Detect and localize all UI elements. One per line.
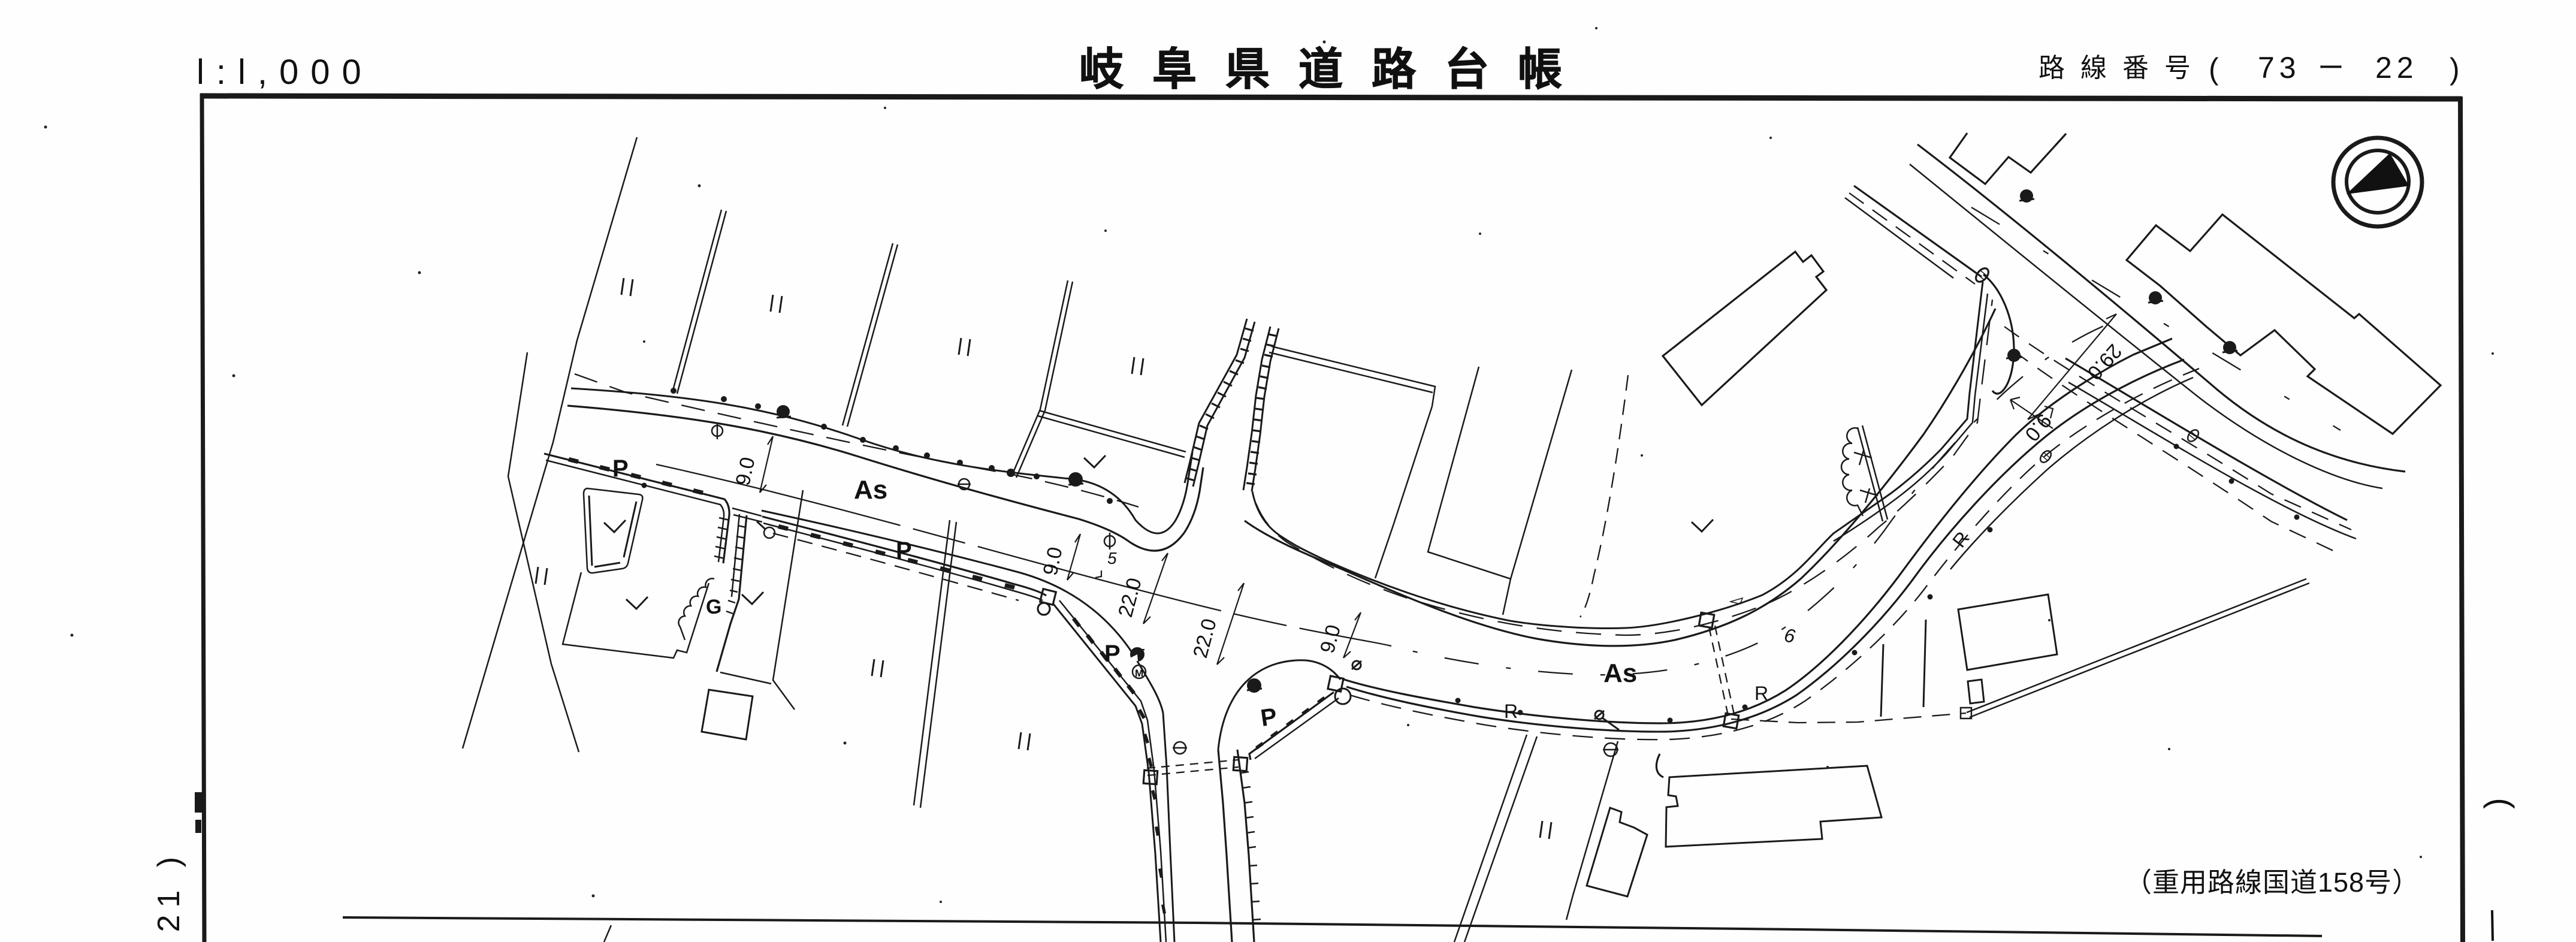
svg-text:（重用路線国道158号）: （重用路線国道158号） bbox=[2125, 867, 2420, 898]
svg-text:路線番号: 路線番号 bbox=[2039, 53, 2206, 83]
svg-text:): ) bbox=[2450, 52, 2460, 86]
svg-text:P: P bbox=[1104, 641, 1121, 667]
svg-text:R: R bbox=[1754, 683, 1768, 704]
svg-text:22: 22 bbox=[2375, 51, 2418, 84]
svg-text:): ) bbox=[2477, 798, 2515, 809]
svg-text:As: As bbox=[854, 475, 887, 505]
svg-text:(: ( bbox=[2209, 52, 2219, 86]
svg-text:P: P bbox=[896, 538, 912, 564]
svg-text:G: G bbox=[706, 596, 721, 618]
svg-text:岐阜県道路台帳: 岐阜県道路台帳 bbox=[1079, 44, 1591, 94]
svg-text:l:l,000: l:l,000 bbox=[197, 53, 373, 92]
svg-text:5: 5 bbox=[1107, 549, 1117, 567]
svg-text:P: P bbox=[612, 455, 629, 482]
svg-text:As: As bbox=[1603, 659, 1637, 688]
svg-text:ー: ー bbox=[2318, 53, 2344, 83]
svg-text:R: R bbox=[1504, 701, 1518, 722]
svg-text:ー 21 ): ー 21 ) bbox=[152, 850, 186, 942]
svg-text:73: 73 bbox=[2258, 51, 2301, 84]
svg-text:M: M bbox=[1135, 668, 1143, 679]
